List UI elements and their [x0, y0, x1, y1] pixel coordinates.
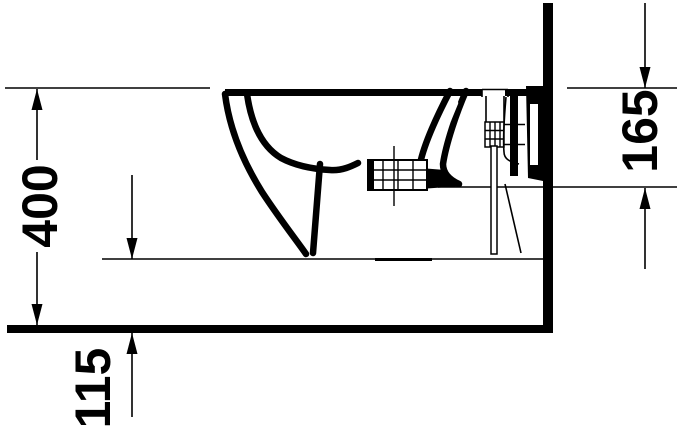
arrowhead-up-icon [127, 333, 138, 354]
bidet-side-elevation-drawing: 400 165 115 [0, 0, 680, 434]
dimension-400-label: 400 [12, 164, 68, 247]
threaded-rod [491, 146, 497, 254]
wall-socket-inner [530, 104, 538, 165]
arrowhead-up-icon [32, 89, 43, 110]
wall-section-line [543, 3, 553, 333]
dimension-400: 400 [12, 89, 68, 325]
dimension-115-label: 115 [65, 348, 121, 429]
drain-pipe-section [510, 90, 518, 176]
arrowhead-up-icon [640, 188, 651, 209]
floor-section-line [7, 325, 553, 333]
reference-lines [5, 88, 677, 260]
dimension-115: 115 [65, 175, 138, 428]
drain-strainer [368, 146, 427, 206]
outlet-pipe-edge [505, 184, 521, 253]
pedestal-inner-edge [313, 164, 320, 253]
arrowhead-down-icon [32, 304, 43, 325]
arrowhead-down-icon [127, 238, 138, 259]
outer-front-profile [225, 94, 306, 254]
in-wall-drain [491, 86, 543, 254]
inner-bowl-profile [247, 94, 358, 170]
dimension-165: 165 [612, 3, 668, 269]
bolt-shaft-lines [486, 96, 504, 122]
arrowhead-down-icon [640, 67, 651, 88]
dimension-165-label: 165 [612, 89, 668, 172]
technical-drawing-canvas: 400 165 115 [0, 0, 680, 434]
